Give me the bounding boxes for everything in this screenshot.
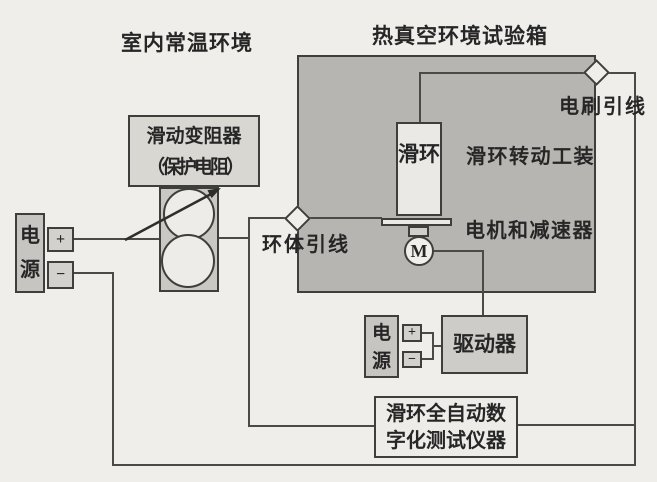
rheostat-coil-top-icon [163,188,215,240]
wire-tester-left [249,425,375,427]
motor-reducer-label: 电机和减速器 [465,214,594,243]
wire-outer-right-vertical [634,72,636,466]
psu-left-minus-terminal: − [47,261,74,289]
wire-junction-vertical [248,217,250,427]
brush-lead-label: 电刷引线 [559,90,647,119]
tester-label-line2: 字化测试仪器 [376,428,516,455]
mounting-plate [381,218,452,226]
room-env-label: 室内常温环境 [121,27,253,57]
chamber-title-label: 热真空环境试验箱 [372,20,548,50]
vacuum-chamber-box [297,55,596,293]
rheostat-label-box: 滑动变阻器 （保护电阻） [128,115,260,187]
tester-label-line1: 滑环全自动数 [376,401,516,428]
wire-motor-out [434,250,484,252]
wire-slipring-top [419,74,421,123]
psu-right-plus-terminal: + [402,324,422,342]
wire-tester-right [517,424,636,426]
rheostat-coil-bottom-icon [161,234,215,288]
wire-rheostat-to-junction [219,237,250,239]
psu-right-box: 电源 [364,315,399,378]
wire-driver-vertical [482,250,484,316]
rheostat-label-line2: （保护电阻） [130,152,258,183]
driver-box: 驱动器 [441,315,528,374]
rheostat-label-line1: 滑动变阻器 [130,121,258,152]
wire-ring-lead [248,217,382,219]
psu-left-box: 电源 [15,213,45,293]
psu-right-minus-terminal: − [402,351,422,368]
wire-psu-minus [74,272,114,274]
ring-lead-label: 环体引线 [262,228,350,257]
motor-circle: M [404,236,434,266]
diagram-canvas: 电源 + − 滑动变阻器 （保护电阻） 滑环 M 电源 + − 驱动器 滑环全自… [0,0,657,482]
wire-bottom-return [112,464,636,466]
wire-psu2-minus [422,358,434,360]
wire-psu-plus-to-rheostat [74,238,159,240]
rotation-fixture-label: 滑环转动工装 [466,140,595,169]
slip-ring-box: 滑环 [396,122,442,216]
psu-left-plus-terminal: + [47,227,74,252]
wire-outer-left-vertical [112,272,114,466]
tester-box: 滑环全自动数 字化测试仪器 [374,396,518,458]
